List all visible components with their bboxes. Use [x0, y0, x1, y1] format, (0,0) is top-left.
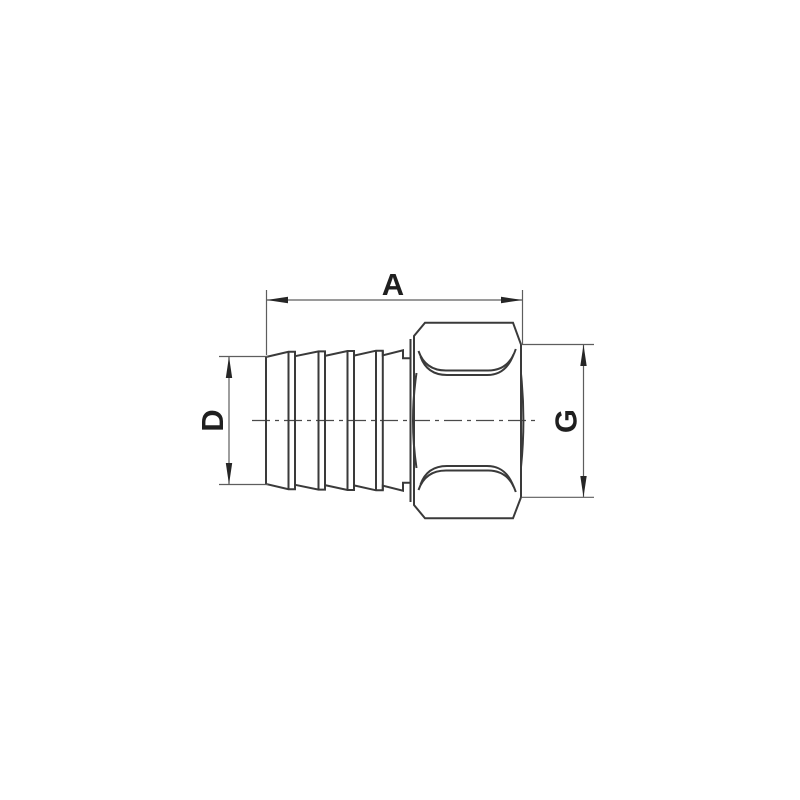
dim-a-arrow-right [501, 297, 523, 303]
dim-g-arrow-top [580, 345, 586, 367]
hex-lower-face-line [419, 471, 516, 493]
hex-upper-face-line [419, 349, 516, 371]
barb-ridges [289, 351, 383, 491]
dimension-a: A [267, 267, 523, 355]
dim-g-arrow-bottom [580, 476, 586, 497]
technical-drawing: A D G [0, 0, 800, 800]
dim-a-label: A [382, 267, 404, 302]
dim-d-arrow-top [226, 357, 232, 379]
dim-g-label: G [549, 409, 584, 433]
hex-lower-face-line [421, 466, 514, 487]
dim-d-arrow-bottom [226, 463, 232, 485]
drawing-canvas: A D G [0, 0, 800, 800]
dim-a-arrow-left [267, 297, 289, 303]
hex-upper-face-line [421, 355, 514, 376]
dim-d-label: D [195, 409, 230, 431]
